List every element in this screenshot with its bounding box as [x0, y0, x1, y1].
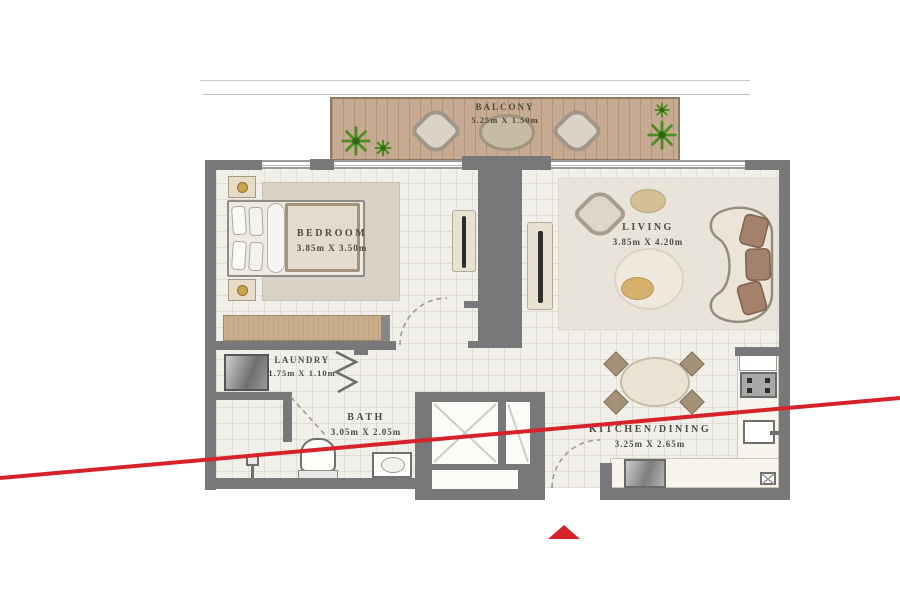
room-label-bedroom: BEDROOM 3.85m X 3.50m: [272, 227, 392, 255]
room-name: BALCONY: [332, 101, 678, 114]
room-name: BATH: [306, 411, 426, 426]
pillow: [248, 207, 263, 237]
lamp-icon: [237, 182, 248, 193]
wall-bath-divider: [283, 392, 292, 442]
building-edge-line: [203, 94, 750, 95]
kitchen-sink-symbol: [743, 420, 775, 444]
balcony: BALCONY 5.25m X 1.50m: [330, 97, 680, 161]
bath-fixture: [246, 455, 259, 466]
wall-entry-stub: [600, 463, 612, 488]
nightstand: [228, 176, 256, 198]
plant-icon: [340, 125, 372, 157]
window-bedroom: [262, 160, 463, 169]
bath-sink-symbol: [372, 452, 412, 478]
tv-console: [452, 210, 476, 272]
elevator-shaft-slot: [506, 402, 530, 464]
building-edge-line: [200, 80, 750, 81]
elevator-lobby-strip: [432, 470, 518, 489]
fridge-symbol: [624, 459, 666, 488]
burner-icon: [765, 388, 770, 393]
room-label-balcony: BALCONY 5.25m X 1.50m: [332, 101, 678, 126]
pillow: [231, 206, 247, 236]
central-shaft-wall: [478, 160, 522, 348]
pillow: [248, 242, 263, 272]
sofa-symbol: [696, 204, 778, 328]
wall-kitchen-top: [735, 347, 779, 356]
room-name: BEDROOM: [272, 227, 392, 242]
wall-bottom-bath: [205, 478, 433, 489]
lamp-icon: [237, 285, 248, 296]
wall-bedroom-bottom: [216, 341, 396, 350]
sink-basin: [381, 457, 405, 473]
wall-stub: [310, 159, 334, 170]
wall-left: [205, 160, 216, 490]
wall-bottom-kitchen: [600, 488, 790, 500]
burner-icon: [765, 378, 770, 383]
room-dimensions: 3.25m X 2.65m: [585, 438, 715, 451]
tv-icon: [462, 216, 466, 268]
tv-console: [527, 222, 553, 310]
tv-icon: [538, 231, 543, 303]
wall-below-laundry: [216, 392, 286, 400]
washing-machine-symbol: [224, 354, 269, 391]
room-dimensions: 5.25m X 1.50m: [332, 114, 678, 126]
elevator-car: [432, 402, 498, 464]
round-rug: [614, 248, 684, 310]
room-name: LIVING: [590, 221, 706, 236]
room-label-kitchen: KITCHEN/DINING 3.25m X 2.65m: [585, 423, 715, 451]
pillow: [231, 241, 247, 271]
vent-box: [760, 472, 776, 485]
room-name: KITCHEN/DINING: [585, 423, 715, 438]
nightstand: [228, 279, 256, 301]
wall-right: [779, 160, 790, 500]
window-living: [551, 160, 745, 169]
floor-plan-image: BALCONY 5.25m X 1.50m: [0, 0, 900, 600]
wall-laundry-stub: [354, 341, 368, 355]
room-dimensions: 3.85m X 4.20m: [590, 236, 706, 249]
room-label-bath: BATH 3.05m X 2.05m: [306, 411, 426, 439]
plant-icon: [374, 139, 392, 157]
room-label-living: LIVING 3.85m X 4.20m: [590, 221, 706, 249]
wall-top-left: [205, 160, 262, 170]
wall-flange: [464, 301, 480, 308]
coffee-table-symbol: [621, 277, 654, 300]
red-triangle-marker: [548, 525, 580, 539]
toilet-symbol: [300, 438, 336, 472]
side-table-symbol: [630, 189, 666, 213]
wardrobe: [223, 315, 390, 341]
wall-flange: [468, 341, 482, 348]
burner-icon: [747, 388, 752, 393]
room-dimensions: 3.85m X 3.50m: [272, 242, 392, 255]
wardrobe-end-cap: [381, 316, 389, 340]
room-dimensions: 3.05m X 2.05m: [306, 426, 426, 439]
stove-symbol: [740, 372, 777, 398]
burner-icon: [747, 378, 752, 383]
